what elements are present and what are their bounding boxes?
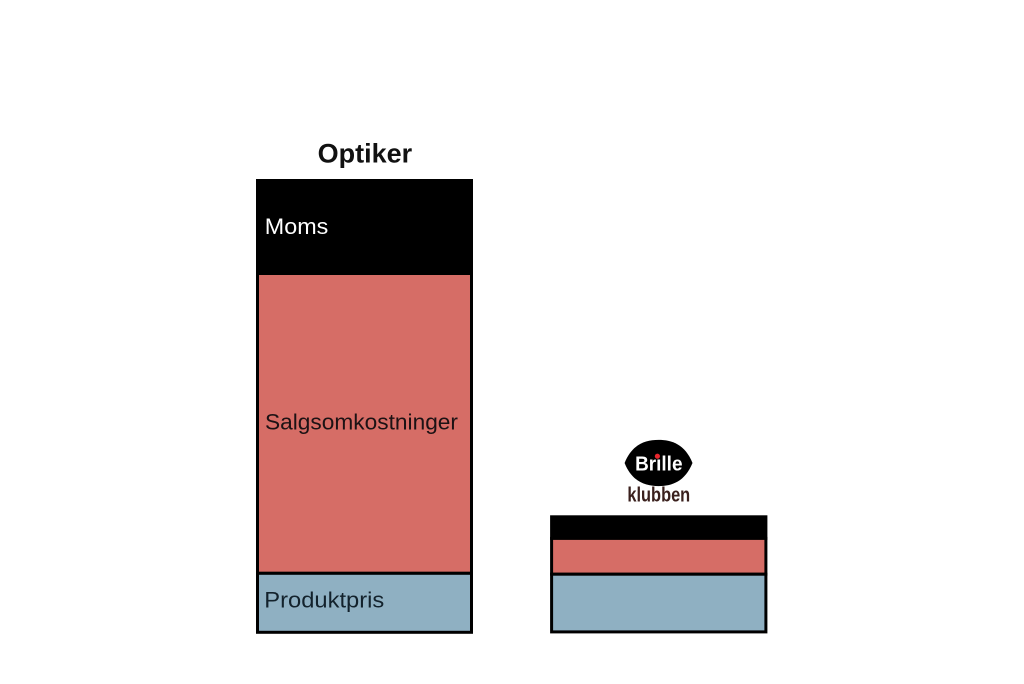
svg-text:klubben: klubben [627,484,690,506]
svg-text:Optiker: Optiker [318,138,413,168]
svg-text:Salgsomkostninger: Salgsomkostninger [265,409,458,434]
svg-text:Produktpris: Produktpris [264,588,384,613]
svg-text:Moms: Moms [265,214,329,239]
